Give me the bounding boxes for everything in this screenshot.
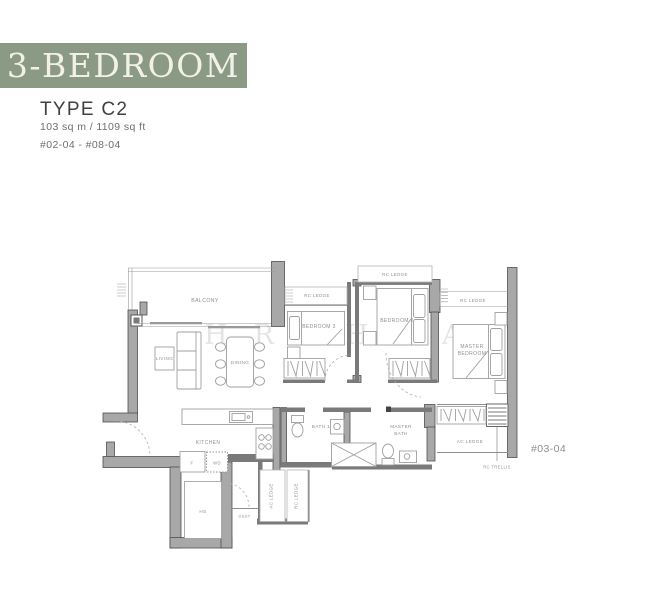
toilet <box>292 416 304 423</box>
door-frame <box>134 318 140 324</box>
sliding-door-panel <box>208 326 260 328</box>
rc-ledge-label: RC LEDGE <box>382 272 408 277</box>
ac-unit <box>487 404 509 427</box>
door-swing <box>325 355 351 381</box>
dining-chair <box>216 377 226 385</box>
washer-dryer-label: WD <box>213 461 221 466</box>
balcony-label: BALCONY <box>191 298 219 304</box>
bath1-label: BATH 1 <box>312 424 330 429</box>
entry-foyer: HS D&ST <box>185 482 259 539</box>
wall <box>281 462 333 468</box>
toilet <box>383 444 394 458</box>
nightstand <box>495 313 507 326</box>
wall <box>140 302 147 315</box>
cooktop-counter <box>256 428 273 459</box>
wardrobe <box>284 359 325 379</box>
basin <box>404 454 410 460</box>
wall <box>347 282 351 357</box>
toilet <box>292 423 303 437</box>
bedroom-3: BEDROOM 3 <box>284 312 345 379</box>
basin <box>334 423 340 429</box>
basin <box>331 420 345 435</box>
nightstand <box>495 381 507 394</box>
dining-area: DINING <box>216 337 265 387</box>
pillow <box>290 317 300 340</box>
pillow <box>491 329 503 351</box>
nightstand <box>364 286 377 300</box>
bath-1: BATH 1 <box>292 416 345 438</box>
hatch-ticks <box>117 284 126 296</box>
wall <box>283 380 325 384</box>
balcony: BALCONY <box>117 268 276 328</box>
dining-chair <box>255 343 265 351</box>
hatch-ticks <box>441 289 448 302</box>
wall <box>107 442 115 457</box>
bedroom-2: BEDROOM 2 <box>364 286 431 378</box>
master-bedroom-label: MASTER <box>460 344 483 350</box>
wall <box>355 282 359 382</box>
master-bath-label: BATH <box>394 431 408 436</box>
sofa <box>177 332 201 389</box>
toilet <box>382 459 394 466</box>
master-bedroom-label: BEDROOM <box>458 351 487 357</box>
floorplan-page: 3-BEDROOM TYPE C2 103 sq m / 1109 sq ft … <box>0 0 656 600</box>
dining-chair <box>255 360 265 368</box>
ac-ledge-label: AC LEDGE <box>269 483 274 508</box>
wall <box>390 408 432 413</box>
wardrobe <box>437 407 486 425</box>
wall <box>323 408 371 413</box>
bedroom3-label: BEDROOM 3 <box>302 324 336 330</box>
floor-plan-drawing: H R I H A <box>0 0 656 600</box>
wall <box>170 467 181 548</box>
wall <box>281 408 287 468</box>
nightstand <box>288 347 301 360</box>
pillow <box>491 354 503 376</box>
wall <box>273 408 280 471</box>
wall <box>431 312 439 382</box>
wall <box>221 462 232 548</box>
dining-chair <box>216 360 226 368</box>
dining-chair <box>255 377 265 385</box>
dining-label: DINING <box>231 360 250 365</box>
rc-trellis-label: RC TRELLIS <box>483 465 511 470</box>
rc-ledge-label: RC LEDGE <box>460 298 486 303</box>
wall <box>508 268 518 458</box>
wall <box>281 408 305 413</box>
wall <box>347 380 359 384</box>
wall <box>103 457 181 468</box>
sliding-door-panel <box>150 322 202 324</box>
living-room: LIVING <box>155 332 201 389</box>
bedroom2-label: BEDROOM 2 <box>380 318 414 324</box>
master-bath-label: MASTER <box>390 424 412 429</box>
hs-label: HS <box>199 509 206 514</box>
wardrobe <box>389 359 430 379</box>
wall <box>103 413 138 422</box>
pillow <box>414 320 426 343</box>
rc-ledge-label: RC LEDGE <box>304 293 330 298</box>
living-label: LIVING <box>156 356 173 361</box>
dst-label: D&ST <box>239 514 251 519</box>
door-swing <box>115 421 150 456</box>
rc-ledge-label: RC LEDGE <box>294 483 299 509</box>
ac-ledge-label: AC LEDGE <box>457 439 483 444</box>
dining-chair <box>216 343 226 351</box>
pillow <box>414 295 426 318</box>
wall <box>427 427 435 461</box>
stack-number-label: #03-04 <box>531 443 566 455</box>
nightstand <box>364 332 377 346</box>
kitchen-label: KITCHEN <box>196 440 221 446</box>
wall <box>344 412 350 443</box>
door-stop <box>386 407 391 413</box>
fridge-label: F <box>191 461 194 466</box>
basin <box>400 451 417 463</box>
kitchen-counter <box>182 409 273 425</box>
